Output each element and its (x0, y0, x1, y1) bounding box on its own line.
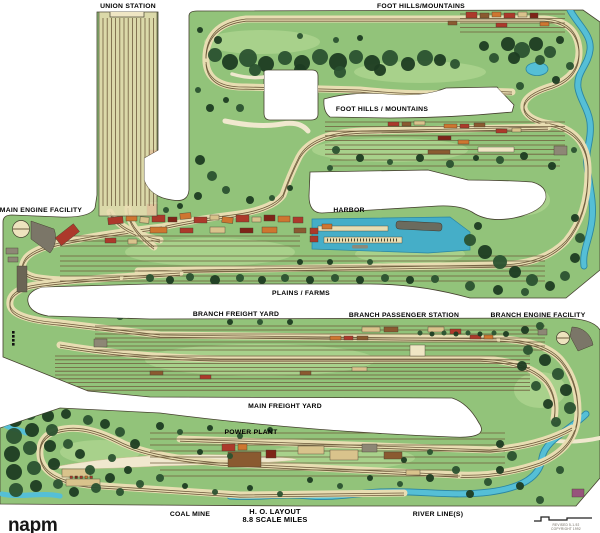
building (410, 345, 425, 356)
tree (331, 274, 339, 282)
building (222, 444, 235, 451)
signal (12, 343, 15, 346)
building (194, 217, 207, 223)
tree (156, 474, 164, 482)
building (90, 476, 93, 479)
tree (465, 281, 475, 291)
tree (222, 186, 230, 194)
building (264, 215, 275, 221)
tree (46, 424, 58, 436)
building (300, 371, 311, 375)
building (357, 336, 368, 340)
tree (560, 384, 572, 396)
tree (116, 488, 124, 496)
tree (90, 305, 100, 315)
building (352, 367, 367, 371)
tree (197, 449, 203, 455)
building (512, 128, 521, 132)
tree (69, 487, 79, 497)
tree (430, 332, 435, 337)
fine-print-line2: COPYRIGHT 1992 (551, 527, 581, 531)
tree (536, 322, 544, 330)
building (310, 236, 318, 242)
building (200, 375, 211, 379)
building (210, 215, 219, 220)
building (238, 444, 247, 450)
tree (327, 165, 333, 171)
service-building (8, 257, 18, 262)
building (150, 227, 167, 233)
tree (496, 156, 504, 164)
tree (575, 233, 585, 243)
tree (566, 62, 574, 70)
tree (6, 464, 22, 480)
tree (156, 422, 164, 430)
signal (12, 331, 15, 334)
tree (501, 37, 515, 51)
title-block: H. O. LAYOUT 8.8 SCALE MILES (242, 507, 307, 524)
tree (427, 449, 433, 455)
label-main-freight-yard: MAIN FREIGHT YARD (248, 403, 322, 410)
station-headhouse (110, 9, 144, 17)
tree (356, 154, 364, 162)
tree (146, 274, 154, 282)
building (293, 217, 303, 223)
tree (571, 214, 579, 222)
tree (177, 429, 183, 435)
tree (206, 104, 214, 112)
tree (108, 454, 116, 462)
tree (478, 245, 492, 259)
building (384, 327, 398, 332)
tree (223, 97, 229, 103)
tree (401, 457, 407, 463)
tree (66, 298, 74, 306)
tree (552, 76, 560, 84)
engine-house (17, 266, 27, 292)
building (80, 476, 83, 479)
tree (115, 427, 125, 437)
tree (452, 466, 460, 474)
napm-logo: napm (8, 515, 57, 533)
tree (246, 196, 254, 204)
tree (496, 466, 504, 474)
tree (287, 185, 293, 191)
tree (30, 480, 42, 492)
tree (508, 52, 520, 64)
tree (85, 465, 95, 475)
tree (210, 275, 220, 285)
tree (186, 273, 194, 281)
building (298, 446, 324, 454)
tree (214, 36, 222, 44)
building (222, 216, 234, 223)
tree (382, 50, 398, 66)
tree (278, 51, 292, 65)
tree (294, 64, 306, 76)
tree (536, 496, 544, 504)
tree (337, 483, 343, 489)
building (236, 215, 249, 222)
tree (406, 276, 414, 284)
tree (442, 331, 447, 336)
tree (544, 46, 556, 58)
building (294, 228, 306, 233)
tree (570, 253, 580, 263)
building (149, 166, 157, 175)
tree (526, 274, 538, 286)
tree (6, 428, 22, 444)
building (406, 470, 420, 475)
harbor-area (312, 217, 470, 253)
label-harbor: HARBOR (333, 207, 364, 214)
building (140, 217, 149, 224)
service-building (6, 248, 18, 254)
tree (53, 479, 63, 489)
tree (227, 453, 233, 459)
building (428, 327, 444, 332)
scale-bar (534, 517, 592, 521)
tree (560, 271, 570, 281)
tree (194, 192, 202, 200)
signal (12, 339, 15, 342)
tree (100, 419, 110, 429)
building (444, 124, 457, 128)
signal (12, 335, 15, 338)
tree (552, 368, 564, 380)
tree (431, 275, 439, 283)
building (105, 238, 116, 243)
pond (526, 63, 548, 76)
tree (489, 53, 499, 63)
tree (516, 482, 524, 490)
tree (327, 259, 333, 265)
scale-bar-block: REVISED 5-1-92 COPYRIGHT 1992 (534, 517, 592, 531)
tree (130, 439, 140, 449)
building (228, 452, 261, 467)
tree (466, 490, 474, 498)
tree (516, 82, 524, 90)
tree (269, 195, 275, 201)
tree (312, 49, 328, 65)
label-power-plant: POWER PLANT (225, 429, 279, 436)
tree (307, 477, 313, 483)
tree (297, 33, 303, 39)
tree (48, 458, 60, 470)
tree (464, 234, 476, 246)
building (330, 450, 358, 460)
tree (503, 331, 509, 337)
tree (163, 207, 169, 213)
building (85, 476, 88, 479)
building (448, 21, 457, 25)
tree (548, 162, 556, 170)
tree (334, 66, 346, 78)
building (150, 371, 163, 375)
label-foothills-mid: FOOT HILLS / MOUNTAINS (336, 106, 428, 113)
tree (63, 439, 73, 449)
tree (9, 483, 23, 497)
building (75, 476, 78, 479)
tree (258, 276, 266, 284)
tree (4, 446, 20, 462)
tree (207, 171, 217, 181)
tree (27, 461, 41, 475)
tree (105, 473, 115, 483)
tree (141, 308, 149, 316)
building (362, 327, 380, 332)
building (149, 178, 157, 186)
tree (281, 274, 289, 282)
tree (454, 332, 459, 337)
building (70, 476, 73, 479)
building (530, 13, 538, 18)
tree (543, 399, 553, 409)
tree (556, 466, 564, 474)
building (414, 121, 425, 125)
building (322, 224, 332, 229)
tree (25, 423, 39, 437)
tree (367, 475, 373, 481)
tree (374, 64, 386, 76)
building (484, 335, 493, 339)
tree (306, 276, 314, 284)
building (402, 122, 411, 126)
tree (287, 319, 293, 325)
building (180, 228, 193, 233)
building (180, 213, 191, 220)
building (460, 124, 469, 128)
tree (212, 489, 218, 495)
label-branch-passenger-station: BRANCH PASSENGER STATION (349, 312, 459, 319)
tree (450, 59, 460, 69)
tree (493, 285, 503, 295)
label-river-lines: RIVER LINE(S) (413, 511, 463, 518)
building (262, 227, 277, 233)
tree (381, 274, 389, 282)
union-station (99, 9, 157, 216)
label-coal-mine: COAL MINE (170, 511, 210, 518)
tree (8, 413, 22, 427)
tree (222, 54, 238, 70)
tree (297, 259, 303, 265)
tree (571, 147, 577, 153)
tree (157, 307, 163, 313)
building (572, 489, 584, 497)
tree (333, 37, 339, 43)
building (384, 452, 402, 459)
layout-plan-page: UNION STATION FOOT HILLS/MOUNTAINS FOOT … (0, 0, 600, 533)
tree (521, 326, 529, 334)
tree (473, 155, 479, 161)
tree (236, 274, 244, 282)
building (278, 216, 290, 222)
tree (417, 50, 433, 66)
tree (332, 146, 340, 154)
tree (24, 408, 36, 420)
tree (182, 483, 188, 489)
tree (523, 345, 533, 355)
tree (367, 259, 373, 265)
building (94, 339, 107, 347)
tree (531, 381, 541, 391)
tree (418, 331, 423, 336)
tree (227, 319, 233, 325)
building (478, 147, 514, 152)
tree (23, 441, 37, 455)
label-branch-engine-facility: BRANCH ENGINE FACILITY (491, 312, 586, 319)
tree (91, 483, 101, 493)
title-line2: 8.8 SCALE MILES (242, 515, 307, 524)
tree (493, 255, 507, 269)
tree (520, 152, 528, 160)
tree (387, 159, 393, 165)
tree (397, 481, 403, 487)
tree (197, 27, 203, 33)
building (438, 136, 451, 140)
tree (529, 37, 543, 51)
building (518, 12, 527, 17)
tree (349, 50, 363, 64)
tree (556, 36, 564, 44)
tree (507, 451, 517, 461)
building (458, 140, 469, 144)
tree (257, 319, 263, 325)
tree (247, 485, 253, 491)
tree (44, 440, 56, 452)
tree (166, 276, 174, 284)
layout-map: UNION STATION FOOT HILLS/MOUNTAINS FOOT … (0, 0, 600, 533)
tree (434, 54, 446, 66)
tree (177, 203, 183, 209)
grass-patch (490, 184, 550, 216)
tree (401, 57, 415, 71)
tree (517, 361, 527, 371)
tree (446, 160, 454, 168)
tree (136, 480, 144, 488)
label-branch-freight-yard: BRANCH FREIGHT YARD (193, 311, 279, 318)
tree (545, 281, 555, 291)
tree (496, 440, 504, 448)
tree (521, 288, 529, 296)
tree (539, 354, 551, 366)
tree (249, 64, 261, 76)
tree (207, 425, 213, 431)
tree (124, 466, 132, 474)
tree (535, 55, 545, 65)
tree (466, 331, 471, 336)
building (504, 13, 515, 18)
tree (195, 155, 205, 165)
building (540, 22, 549, 26)
tree (509, 266, 521, 278)
building (266, 450, 276, 458)
tree (478, 332, 483, 337)
tree (474, 222, 482, 230)
building (240, 228, 253, 233)
harbor-water (312, 217, 470, 253)
label-foothills-top: FOOT HILLS/MOUNTAINS (377, 3, 465, 10)
building (496, 129, 507, 133)
building (480, 13, 489, 18)
tree (236, 104, 244, 112)
tree (116, 312, 124, 320)
tree (357, 35, 363, 41)
building (344, 336, 353, 340)
building (428, 150, 450, 154)
label-main-engine-facility: MAIN ENGINE FACILITY (0, 207, 82, 214)
building (492, 12, 501, 17)
tree (564, 402, 576, 414)
label-plains-farms: PLAINS / FARMS (272, 290, 330, 297)
tree (426, 474, 434, 482)
building (210, 227, 225, 233)
tree (356, 276, 364, 284)
building (388, 122, 399, 126)
tree (492, 331, 497, 336)
tree (61, 409, 71, 419)
tree (208, 48, 222, 62)
building (474, 123, 485, 127)
tree (277, 491, 283, 497)
boat (352, 245, 368, 249)
building (362, 444, 377, 452)
building (128, 239, 137, 244)
building (466, 12, 477, 18)
tree (195, 87, 201, 93)
building (168, 217, 177, 222)
tree (416, 154, 424, 162)
tree (83, 415, 93, 425)
building (310, 228, 318, 234)
building (496, 23, 507, 27)
tree (484, 478, 492, 486)
label-union-station: UNION STATION (100, 3, 156, 10)
building (554, 146, 567, 155)
tree (479, 41, 489, 51)
building (108, 216, 124, 225)
building (330, 336, 341, 340)
tree (551, 417, 561, 427)
building (252, 217, 261, 222)
tree (75, 449, 85, 459)
